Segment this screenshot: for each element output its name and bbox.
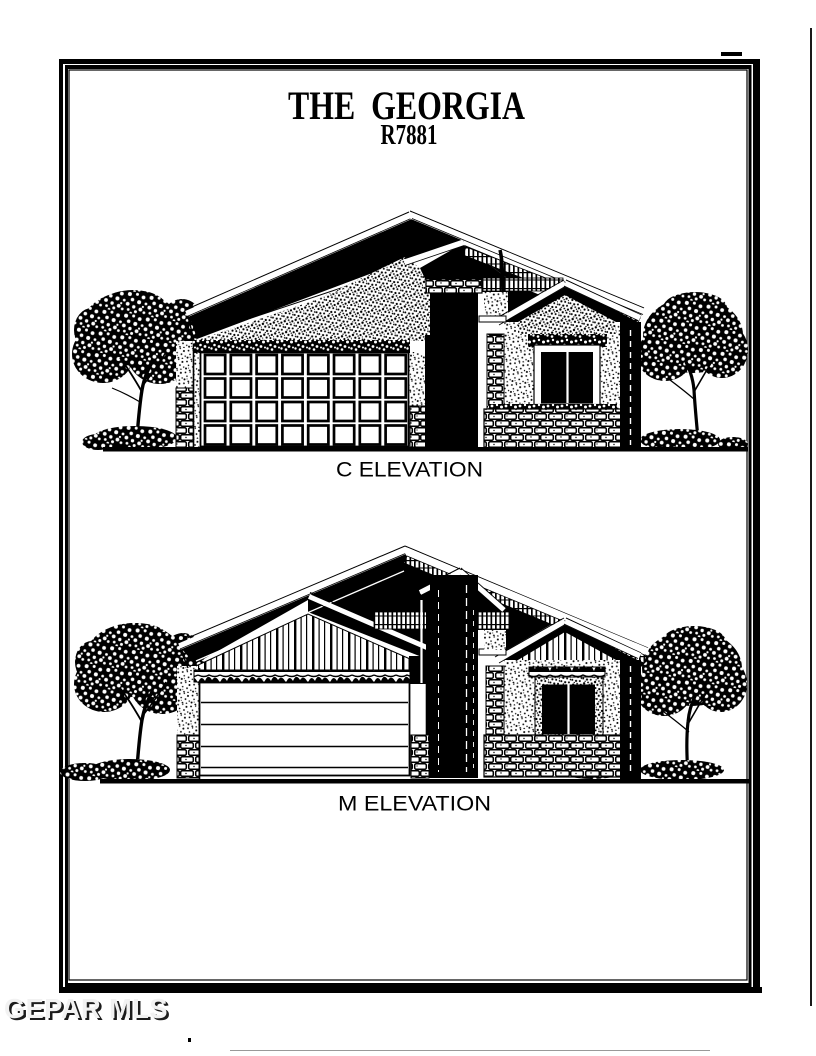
svg-text:R7881: R7881 (381, 120, 438, 151)
svg-text:GEPAR MLS: GEPAR MLS (4, 993, 168, 1024)
svg-text:M ELEVATION: M ELEVATION (338, 792, 491, 816)
svg-text:C ELEVATION: C ELEVATION (336, 458, 483, 482)
